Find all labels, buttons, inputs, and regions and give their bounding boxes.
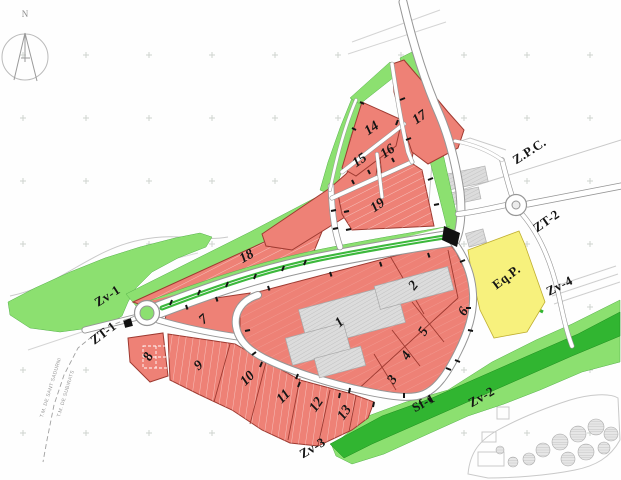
- zoning-plan-map: T.M. DE SANT SADURNI T.M. DE SUBIRATS Z.…: [0, 0, 621, 480]
- zone-label-zt2: ZT-2: [530, 206, 562, 235]
- zone-label-zpc: Z.P.C.: [510, 134, 549, 167]
- compass-rose: N: [2, 9, 48, 81]
- plan-canvas: T.M. DE SANT SADURNI T.M. DE SUBIRATS Z.…: [0, 0, 621, 480]
- roundabout-zt1-island: [140, 306, 154, 320]
- roundabout-zt2-island: [512, 201, 520, 209]
- old-track-lines: [348, 10, 446, 54]
- municipality-label-subirats: T.M. DE SUBIRATS: [56, 369, 76, 418]
- compass-north-label: N: [22, 9, 29, 19]
- municipal-boundary: T.M. DE SANT SADURNI T.M. DE SUBIRATS: [39, 316, 135, 462]
- compass-needle: [14, 33, 37, 81]
